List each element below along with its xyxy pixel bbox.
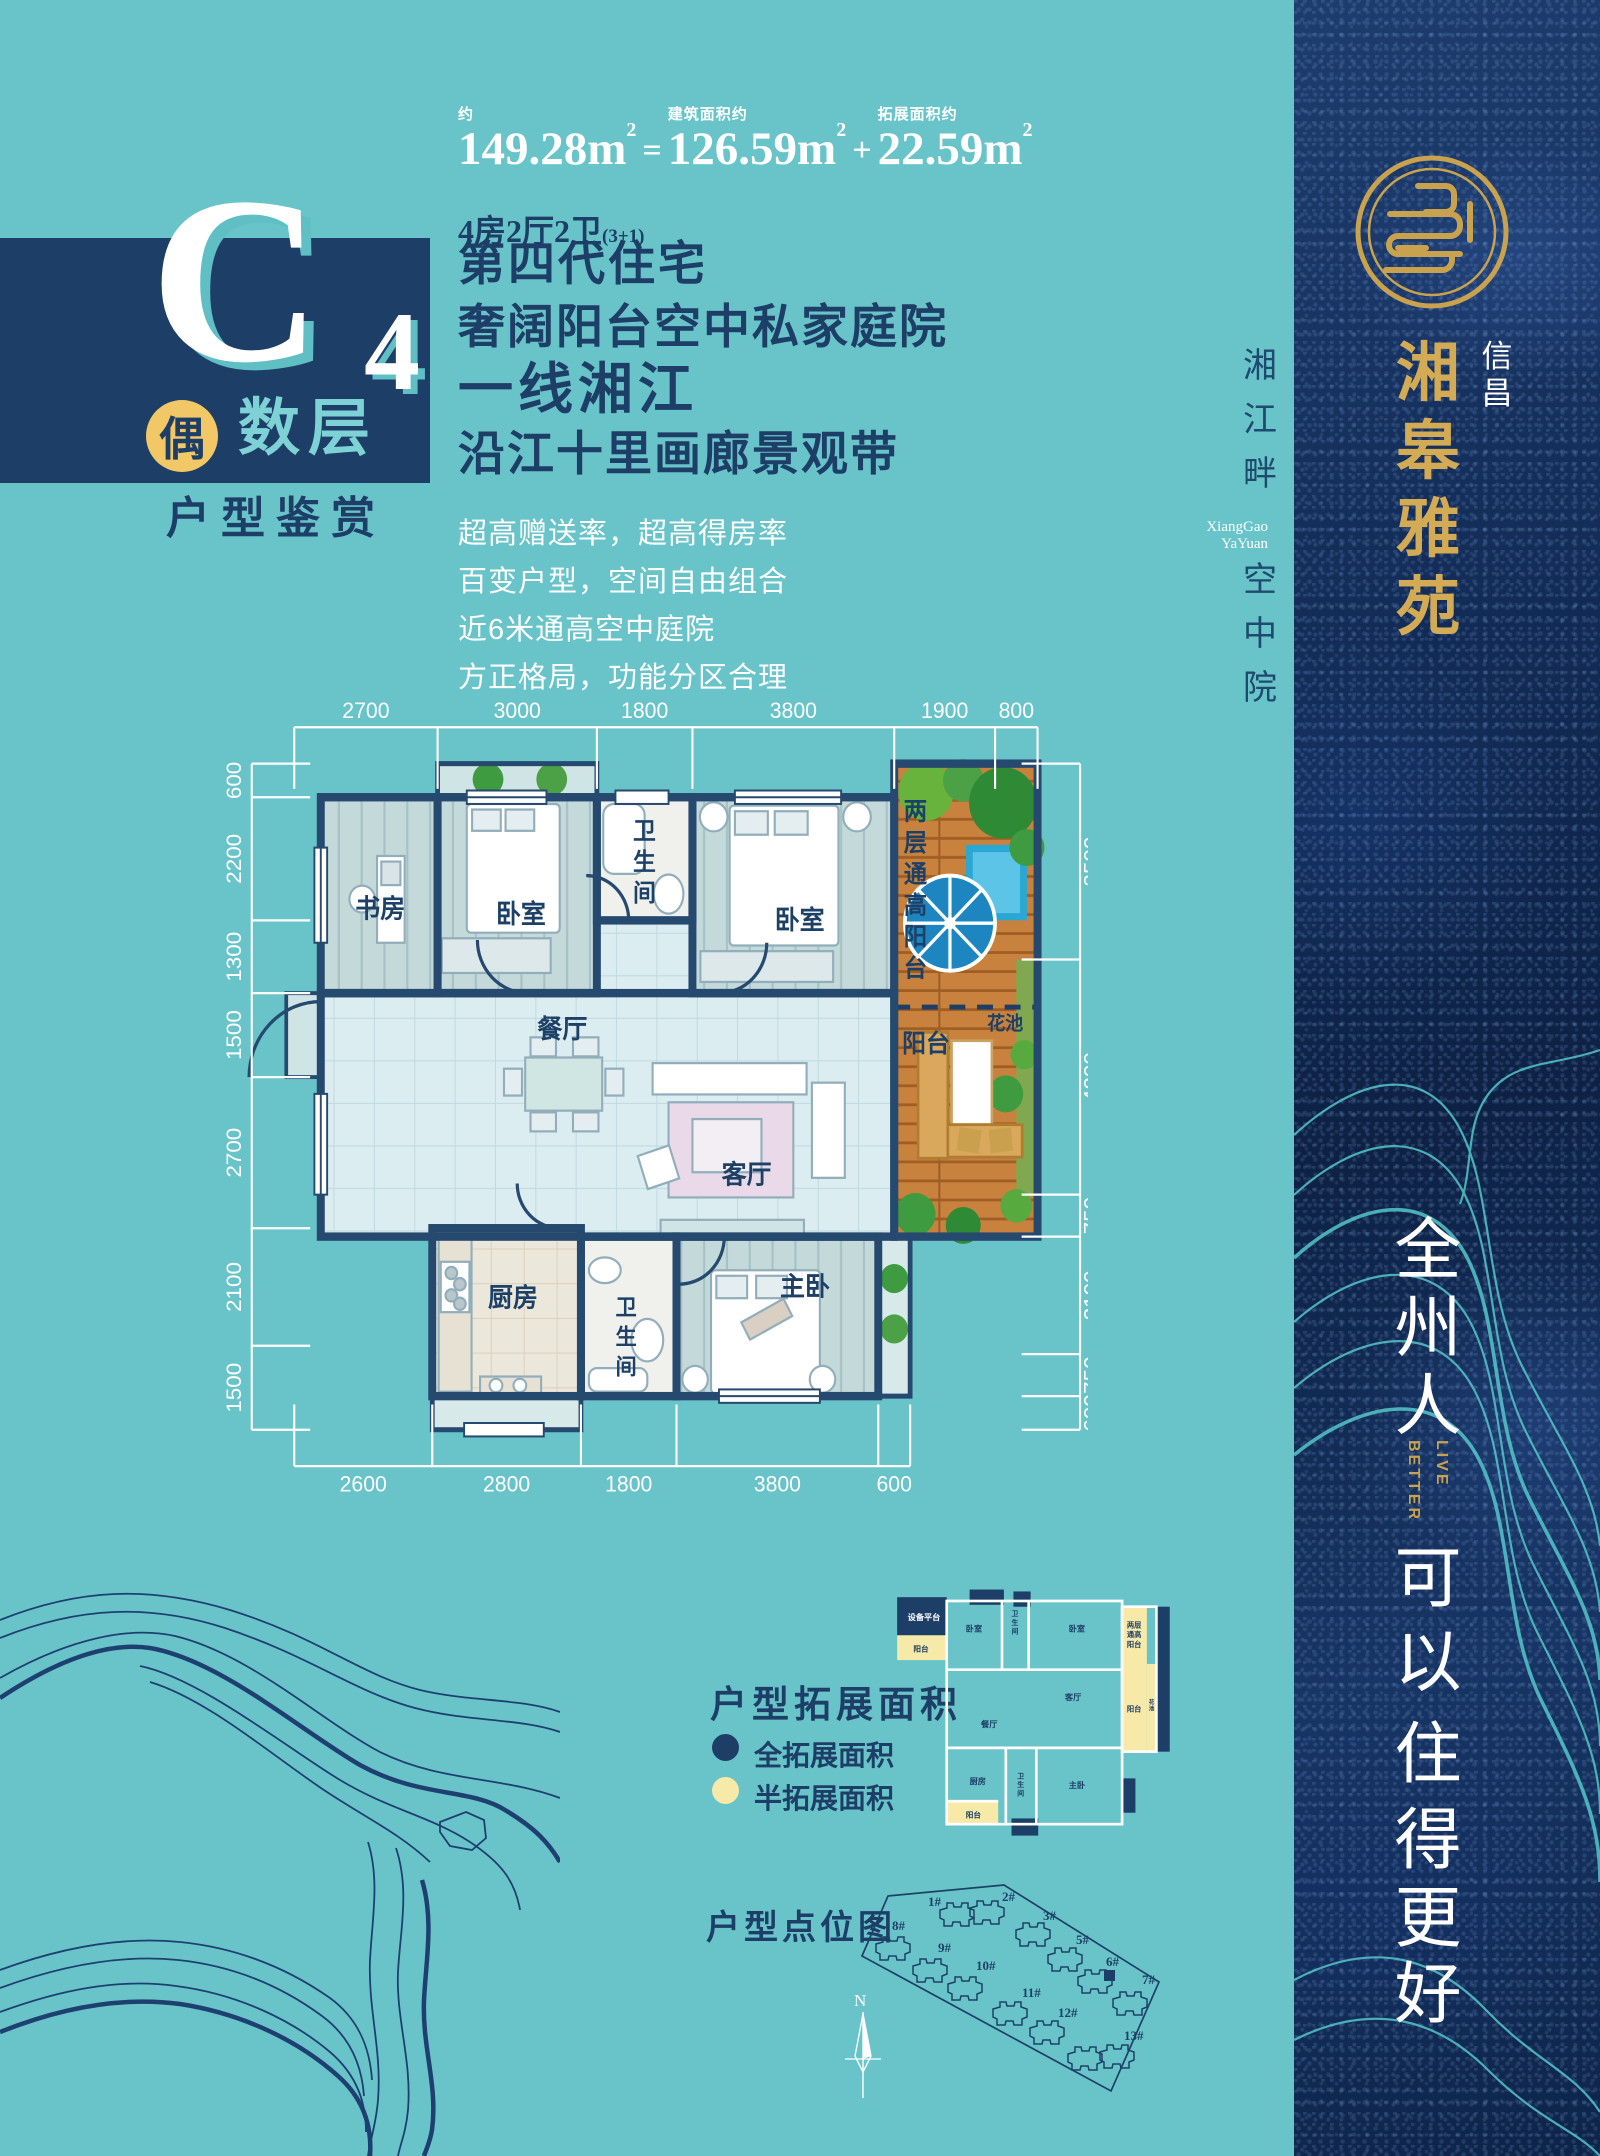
double-balcony-char: 阳 [904,923,927,951]
slogan-char: 州 [1360,1296,1496,1363]
building-labels: 1# 2# 3# 5# 6# 7# 8# 9# 10# 11# 12# 13# [892,1889,1156,2043]
svg-text:2700: 2700 [342,697,389,723]
svg-text:N: N [854,1991,866,2010]
svg-text:3000: 3000 [494,697,541,723]
river-strip-char: 畔 [1238,458,1282,492]
headline-line: 一线湘江 [458,362,948,417]
river-strip-char: 江 [1238,404,1282,438]
brand-char: 苑 [1364,576,1492,640]
master-label: 主卧 [780,1272,830,1302]
living-label: 客厅 [722,1159,772,1190]
svg-text:1500: 1500 [222,1010,246,1060]
svg-text:餐厅: 餐厅 [980,1719,997,1729]
svg-text:7#: 7# [1142,1972,1156,1987]
unit-type-number: 4 [364,296,420,408]
pinyin-name: XiangGao YaYuan [1150,519,1268,553]
expansion-mini-plan: 设备平台 阳台 卧室 卫 生 间 卧室 客厅 餐厅 厨房 卫 生 间 主卧 两层… [880,1580,1185,1848]
headline: 第四代住宅 奢阔阳台空中私家庭院 一线湘江 沿江十里画廊景观带 [458,240,948,477]
svg-text:厨房: 厨房 [970,1776,986,1786]
mini-balcony-label: 阳台 [913,1644,929,1654]
live-label: LIVE [1432,1440,1450,1488]
half-expansion-label: 半拓展面积 [754,1777,894,1817]
svg-text:2#: 2# [1002,1889,1016,1904]
svg-text:13#: 13# [1124,2028,1144,2043]
unit-type-letter: C [150,162,322,400]
balcony-label: 阳台 [902,1028,950,1058]
svg-text:3800: 3800 [770,697,817,723]
svg-text:1800: 1800 [605,1471,652,1497]
svg-text:600: 600 [222,762,246,799]
bath-label-char: 间 [615,1355,636,1380]
svg-text:生: 生 [1012,1618,1019,1627]
site-map: N 1# 2# 3# 5# 6# 7# 8# 9# 10# 11# 12# 13… [836,1860,1186,2126]
double-balcony-char: 高 [904,891,927,920]
feature-line: 超高赠送率，超高得房率 [458,510,788,558]
bedroom-label: 卧室 [496,899,546,930]
floor-plan: 书房 卧室 卫 生 间 卧室 两 层 通 高 阳 台 餐厅 客厅 阳台 花池 厨… [196,692,1088,1512]
svg-text:2600: 2600 [340,1471,387,1497]
better-label: BETTER [1404,1440,1422,1522]
svg-text:客厅: 客厅 [1064,1692,1081,1702]
svg-text:生: 生 [1017,1780,1024,1789]
svg-text:3#: 3# [1043,1908,1057,1923]
slogan-char: 得 [1360,1808,1496,1875]
brand-char: 雅 [1364,498,1492,562]
slogan-char: 住 [1360,1722,1496,1789]
compass-icon: N [845,1991,881,2098]
svg-text:卧室: 卧室 [1069,1623,1085,1633]
brand-logo-icon [1352,152,1512,312]
svg-text:1900: 1900 [921,697,968,723]
svg-text:600: 600 [1079,1394,1088,1431]
double-balcony-char: 层 [904,830,927,857]
svg-text:阳台: 阳台 [1127,1640,1141,1649]
slogan-char: 以 [1360,1630,1496,1697]
svg-text:阳台: 阳台 [1127,1705,1141,1714]
bedroom-label: 卧室 [775,904,825,935]
full-expansion-dot [712,1734,739,1761]
sidebar: 信 昌 湘 皋 雅 苑 全 州 人 LIVE BETTER 可 以 住 得 更 … [1294,0,1600,2156]
selling-points: 超高赠送率，超高得房率 百变户型，空间自由组合 近6米通高空中庭院 方正格局，功… [458,510,788,702]
svg-text:两层: 两层 [1127,1621,1141,1630]
svg-text:9#: 9# [938,1940,952,1955]
expand-area-label: 拓展面积约 [878,106,1033,124]
svg-text:2200: 2200 [222,834,246,884]
slogan-char: 好 [1360,1962,1496,2029]
svg-text:卫: 卫 [1012,1610,1019,1618]
svg-text:主卧: 主卧 [1069,1780,1086,1790]
svg-text:2700: 2700 [222,1128,246,1178]
svg-text:2100: 2100 [1079,1270,1088,1320]
even-floors-label: 数层 [238,398,378,460]
river-strip-char: 湘 [1238,350,1282,384]
double-balcony-char: 两 [904,799,927,826]
svg-text:1300: 1300 [222,932,246,982]
court-strip-char: 空 [1238,564,1282,598]
mini-balcony-label: 阳台 [966,1809,982,1819]
even-floor-badge: 偶 [146,400,218,472]
svg-text:2100: 2100 [222,1262,246,1312]
slogan-char: 人 [1360,1374,1496,1441]
equals-sign: = [636,128,667,174]
svg-text:600: 600 [876,1471,911,1497]
court-strip-char: 中 [1238,618,1282,652]
svg-text:3800: 3800 [754,1471,801,1497]
svg-text:8#: 8# [892,1918,906,1933]
svg-text:卧室: 卧室 [966,1623,982,1633]
feature-line: 百变户型，空间自由组合 [458,558,788,606]
total-area: 149.28 [458,123,587,175]
svg-text:3500: 3500 [1079,837,1088,887]
svg-text:4200: 4200 [1079,1052,1088,1102]
built-area-label: 建筑面积约 [668,106,846,124]
bath-label-char: 生 [615,1325,636,1350]
svg-text:2800: 2800 [483,1471,530,1497]
site-boundary [862,1885,1159,2091]
unit-appreciation-label: 户型鉴赏 [166,497,386,541]
half-expansion-dot [712,1777,739,1804]
svg-text:750: 750 [1079,1356,1088,1393]
svg-text:1#: 1# [928,1894,942,1909]
slogan-char: 可 [1360,1546,1496,1613]
svg-text:11#: 11# [1022,1985,1041,2000]
headline-line: 奢阔阳台空中私家庭院 [458,303,948,350]
study-label: 书房 [355,894,405,924]
expand-area: 22.59 [878,123,984,175]
brand-char: 皋 [1364,420,1492,484]
bath-label-char: 卫 [615,1295,636,1320]
svg-text:卫: 卫 [1017,1772,1024,1780]
highlight-unit-marker [1104,1970,1115,1981]
slogan-char: 更 [1360,1886,1496,1953]
svg-text:800: 800 [999,697,1034,723]
double-balcony-char: 台 [904,954,927,983]
svg-text:6#: 6# [1106,1954,1120,1969]
feature-line: 近6米通高空中庭院 [458,606,788,654]
svg-text:间: 间 [1017,1789,1024,1798]
brand-char: 湘 [1364,342,1492,406]
svg-text:750: 750 [1079,1197,1088,1234]
bath-label-char: 生 [633,848,656,876]
svg-text:间: 间 [1012,1626,1019,1635]
mini-equipment-label: 设备平台 [908,1612,941,1622]
kitchen-label: 厨房 [488,1283,538,1313]
svg-text:10#: 10# [976,1958,996,1973]
built-area: 126.59 [668,123,797,175]
slogan-char: 全 [1360,1218,1496,1285]
area-summary: 约 149.28m2 = 建筑面积约 126.59m2 + 拓展面积约 22.5… [458,106,1032,174]
svg-text:12#: 12# [1058,2005,1078,2020]
contour-pattern [0,1580,560,2156]
dining-label: 餐厅 [537,1014,587,1044]
svg-text:5#: 5# [1076,1932,1090,1947]
approx-label: 约 [458,106,636,124]
svg-text:1800: 1800 [621,697,668,723]
court-strip-char: 院 [1238,672,1282,706]
headline-line: 第四代住宅 [458,240,948,287]
svg-text:通高: 通高 [1127,1630,1141,1639]
full-expansion-label: 全拓展面积 [754,1734,894,1774]
bath-label-char: 卫 [633,819,656,846]
plus-sign: + [846,128,877,174]
headline-line: 沿江十里画廊景观带 [458,430,948,477]
double-balcony-char: 通 [904,862,927,889]
svg-text:1500: 1500 [222,1363,246,1413]
bath-label-char: 间 [633,879,656,907]
flowerbed-label: 花池 [987,1012,1024,1035]
